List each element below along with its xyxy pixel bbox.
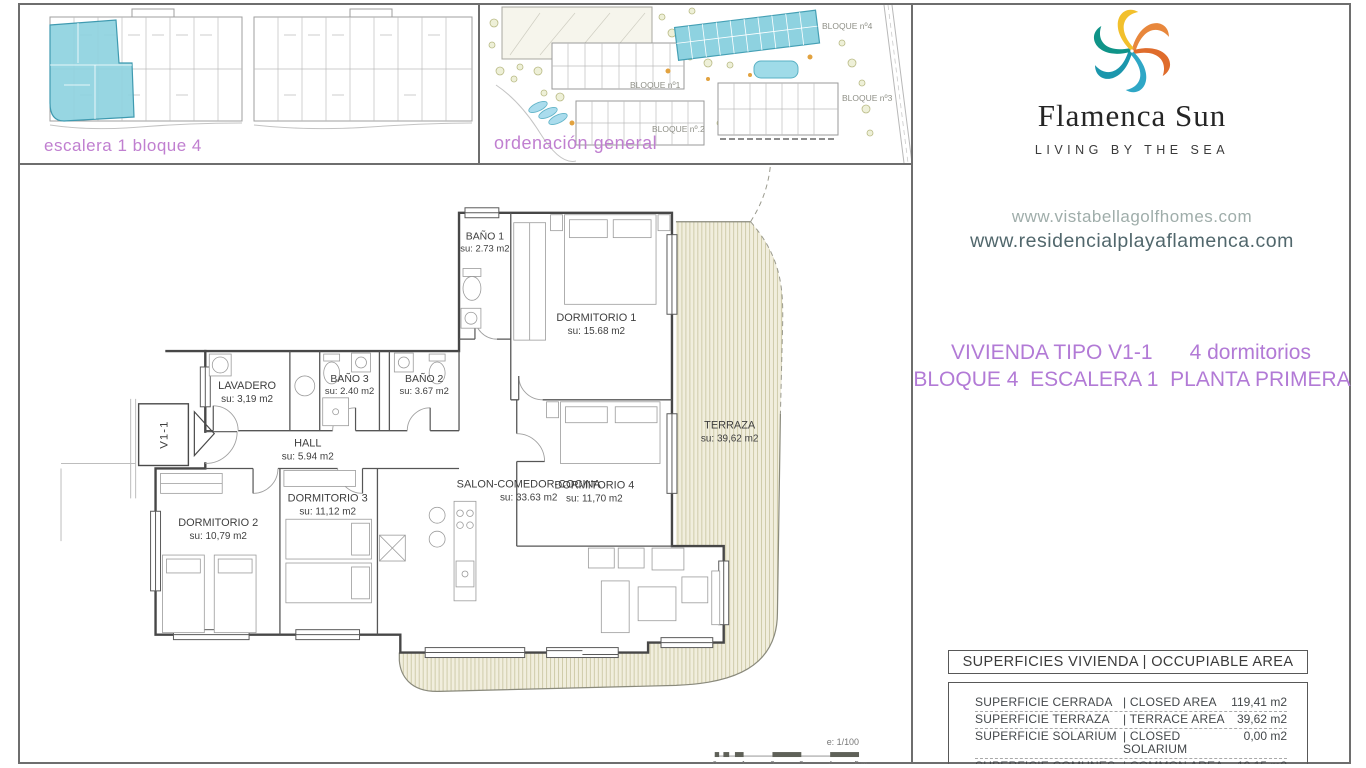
highlighted-apartment <box>50 20 134 121</box>
room-label: TERRAZA <box>704 420 756 432</box>
table-row: SUPERFICIE TERRAZA | TERRACE AREA 39,62 … <box>975 712 1287 729</box>
room-area: su: 5.94 m2 <box>282 452 334 463</box>
room-area: su: 11,70 m2 <box>566 493 623 504</box>
room-area: su: 33.63 m2 <box>500 492 558 503</box>
panel-escalera-overview: escalera 1 bloque 4 <box>20 5 476 163</box>
scale-tick: 5 m <box>854 760 868 764</box>
scale-note: e: 1/100 <box>827 737 859 747</box>
unit-type: VIVIENDA TIPO V1-1 <box>951 339 1153 366</box>
site-label-bloque4: BLOQUE nº4 <box>822 21 873 31</box>
room-area: su: 15.68 m2 <box>568 326 626 337</box>
brand-title: Flamenca Sun <box>913 98 1351 134</box>
furniture <box>161 215 720 633</box>
room-label: DORMITORIO 2 <box>178 517 258 529</box>
url-residencial: www.residencialplayaflamenca.com <box>913 229 1351 253</box>
brand-tagline: LIVING BY THE SEA <box>913 143 1351 157</box>
scale-tick: 3 <box>799 760 804 764</box>
url-vistabella: www.vistabellagolfhomes.com <box>913 205 1351 229</box>
room-area: su: 11,12 m2 <box>299 506 356 517</box>
site-label-bloque3: BLOQUE nº3 <box>842 93 893 103</box>
site-label-bloque2: BLOQUE nº.2 <box>652 124 705 134</box>
unit-tag: V1-1 <box>158 421 170 449</box>
floor-plan-drawing: V1-1 BAÑO 1 su: 2.73 m2 DORMITORIO 1 su:… <box>18 165 911 764</box>
room-label: DORMITORIO 1 <box>556 312 636 324</box>
scale-bar: e: 1/100 0 1 2 3 4 5 m <box>713 737 868 764</box>
room-label: SALON-COMEDOR-COCINA <box>457 478 602 490</box>
unit-location: BLOQUE 4 ESCALERA 1 PLANTA PRIMERA <box>913 366 1351 393</box>
brochure-page: escalera 1 bloque 4 <box>0 0 1366 768</box>
room-area: su: 10,79 m2 <box>190 531 248 542</box>
unit-info: VIVIENDA TIPO V1-1 4 dormitorios BLOQUE … <box>913 339 1351 393</box>
room-area: su: 3.67 m2 <box>400 386 449 397</box>
flamenca-sun-logo-icon <box>1088 7 1176 95</box>
room-area: su: 2.40 m2 <box>325 386 374 397</box>
room-area: su: 3,19 m2 <box>221 394 273 405</box>
site-label-bloque1: BLOQUE nº1 <box>630 80 681 90</box>
scale-tick: 4 <box>828 760 833 764</box>
highlighted-block-4 <box>675 10 820 60</box>
table-row: SUPERFICIE SOLARIUM | CLOSED SOLARIUM 0,… <box>975 729 1287 759</box>
room-area: su: 39,62 m2 <box>701 434 759 445</box>
table-row: SUPERFICIE CERRADA | CLOSED AREA 119,41 … <box>975 695 1287 712</box>
website-urls: www.vistabellagolfhomes.com www.residenc… <box>913 205 1351 253</box>
panel-site-plan: BLOQUE nº1 BLOQUE nº.2 BLOQUE nº3 BLOQUE… <box>480 5 911 163</box>
right-column: Flamenca Sun LIVING BY THE SEA www.vista… <box>913 3 1351 764</box>
scale-tick: 0 <box>713 760 718 764</box>
ordenacion-caption: ordenación general <box>494 133 657 154</box>
floor-plan-panel: V1-1 BAÑO 1 su: 2.73 m2 DORMITORIO 1 su:… <box>18 165 911 764</box>
room-label: HALL <box>294 438 321 450</box>
areas-table-header: SUPERFICIES VIVIENDA | OCCUPIABLE AREA <box>948 650 1308 674</box>
doors <box>205 317 544 493</box>
neighbour-walls <box>61 399 136 541</box>
table-row: SUPERFICIE COMUNES | COMMON AREA 10,15 m… <box>975 759 1287 764</box>
brand-block: Flamenca Sun LIVING BY THE SEA <box>913 3 1351 157</box>
escalera-caption: escalera 1 bloque 4 <box>44 136 202 156</box>
room-label: DORMITORIO 3 <box>288 492 368 504</box>
areas-table: SUPERFICIE CERRADA | CLOSED AREA 119,41 … <box>948 682 1308 764</box>
room-label: BAÑO 2 <box>405 372 443 385</box>
room-label: LAVADERO <box>218 380 276 392</box>
room-label: BAÑO 1 <box>466 230 504 243</box>
unit-bedrooms: 4 dormitorios <box>1190 339 1311 366</box>
room-label: BAÑO 3 <box>330 372 368 385</box>
scale-tick: 2 <box>770 760 775 764</box>
scale-tick: 1 <box>741 760 746 764</box>
room-area: su: 2.73 m2 <box>460 244 509 255</box>
